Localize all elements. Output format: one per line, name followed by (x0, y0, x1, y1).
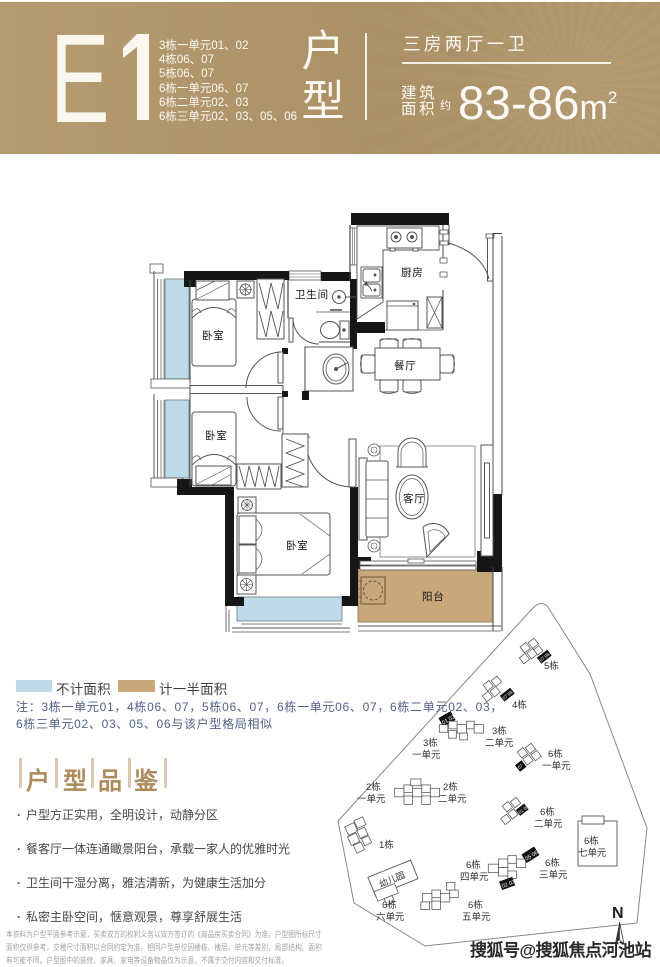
svg-text:餐厅: 餐厅 (394, 359, 417, 372)
svg-text:4栋: 4栋 (512, 699, 527, 711)
svg-text:阳台: 阳台 (422, 590, 445, 603)
svg-text:四单元: 四单元 (460, 871, 489, 883)
svg-text:2栋: 2栋 (366, 781, 381, 793)
svg-text:卧室: 卧室 (205, 429, 228, 442)
svg-text:卧室: 卧室 (202, 329, 225, 342)
svg-text:六单元: 六单元 (376, 911, 405, 923)
svg-text:1栋: 1栋 (379, 839, 394, 851)
svg-text:卧室: 卧室 (286, 539, 309, 552)
svg-text:6栋: 6栋 (468, 899, 483, 911)
svg-text:厨房: 厨房 (401, 266, 424, 279)
svg-text:N: N (612, 905, 624, 922)
svg-text:五单元: 五单元 (462, 911, 491, 923)
svg-text:三单元: 三单元 (539, 869, 568, 881)
svg-text:卫生间: 卫生间 (295, 288, 329, 301)
svg-text:一单元: 一单元 (412, 749, 441, 761)
svg-text:6栋: 6栋 (584, 835, 599, 847)
svg-text:2栋: 2栋 (443, 781, 458, 793)
svg-text:6栋: 6栋 (382, 899, 397, 911)
svg-text:6栋: 6栋 (466, 859, 481, 871)
svg-text:二单元: 二单元 (534, 818, 563, 830)
svg-text:客厅: 客厅 (403, 492, 426, 505)
svg-text:七单元: 七单元 (578, 847, 607, 859)
svg-text:二单元: 二单元 (485, 737, 514, 749)
svg-text:二单元: 二单元 (438, 793, 467, 805)
svg-text:6栋: 6栋 (545, 857, 560, 869)
svg-text:3栋: 3栋 (423, 737, 438, 749)
svg-text:一单元: 一单元 (357, 793, 386, 805)
svg-text:一单元: 一单元 (542, 760, 571, 772)
svg-text:6栋: 6栋 (540, 806, 555, 818)
svg-text:6栋: 6栋 (548, 748, 563, 760)
svg-text:5栋: 5栋 (544, 660, 559, 672)
